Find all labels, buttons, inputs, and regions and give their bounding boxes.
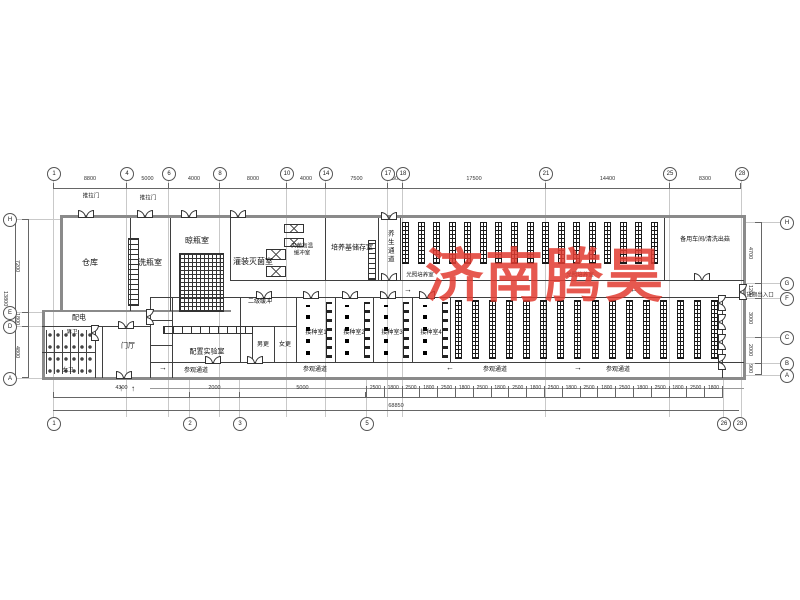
wall: [400, 218, 401, 281]
dim-value: 17500: [403, 176, 545, 182]
dimension-chain-left: 7200 1800 4800: [22, 219, 29, 378]
rack-strip: [677, 300, 684, 359]
lab-bench: [163, 326, 253, 334]
grid-bubble-top: 10: [280, 167, 294, 181]
grid-bubble-right: C: [780, 331, 794, 345]
dim-value: 900: [747, 364, 753, 374]
grid-bubble-top: 8: [213, 167, 227, 181]
dim-value: 1800: [491, 386, 509, 397]
door-symbol: [181, 210, 197, 218]
room-label-mens-toilet: 男卫: [66, 330, 77, 336]
grid-line: [126, 173, 127, 417]
grid-line: [723, 380, 724, 417]
door-symbol: [303, 291, 319, 299]
door-symbol: [694, 273, 710, 281]
wall: [373, 297, 374, 363]
grid-bubble-top: 18: [396, 167, 410, 181]
direction-arrow: →: [404, 286, 412, 294]
dim-value: 1800: [419, 386, 437, 397]
rack-strip: [694, 300, 701, 359]
dim-total-value: 13800: [2, 219, 8, 378]
grid-line: [669, 173, 670, 417]
dim-value: 2000: [190, 385, 239, 391]
door-symbol: [718, 295, 726, 311]
wall: [42, 311, 45, 380]
dimension-chain-bottom: 4300 2000 5000: [53, 392, 366, 398]
grid-bubble-bottom: 2: [183, 417, 197, 431]
door-symbol: [718, 314, 726, 330]
grid-bubble-right: H: [780, 216, 794, 230]
direction-arrow: →: [159, 364, 167, 372]
grid-bubble-top: 1: [47, 167, 61, 181]
dim-value: 8000: [220, 176, 286, 182]
grid-bubble-top: 4: [120, 167, 134, 181]
grid-bubble-left: H: [3, 213, 17, 227]
grid-bubble-top: 21: [539, 167, 553, 181]
door-symbol: [118, 321, 134, 329]
label-cargo-entrance: 货物出入口: [746, 293, 774, 299]
dim-value: 1800: [526, 386, 544, 397]
dim-value: 2500: [615, 386, 633, 397]
grid-bubble-bottom: 26: [717, 417, 731, 431]
room-label-warehouse: 仓库: [82, 259, 98, 267]
room-label-inoculation-2: 接种室2: [343, 330, 364, 336]
grid-bubble-right: A: [780, 369, 794, 383]
entrance-arrow: ↑: [131, 385, 135, 393]
door-symbol: [146, 309, 154, 325]
label-sliding-door: 推拉门: [140, 196, 157, 202]
dim-value: 2500: [437, 386, 455, 397]
door-symbol: [137, 210, 153, 218]
grid-bubble-top: 17: [381, 167, 395, 181]
dimension-chain-top: 8800 5000 4000 8000 4000 7500 1800 17500…: [53, 183, 741, 189]
watermark-text: 济南腾昊: [425, 248, 665, 306]
dim-value: 2500: [402, 386, 420, 397]
grid-bubble-top: 6: [162, 167, 176, 181]
grid-line: [15, 378, 42, 379]
room-label-sterilize-buffer-1: 灭菌高温: [291, 244, 313, 250]
floor-plan-canvas: 8800 5000 4000 8000 4000 7500 1800 17500…: [0, 0, 800, 600]
wall: [325, 218, 326, 281]
room-label-prep-lab: 配置实验室: [190, 349, 225, 356]
room-label-secondary-buffer: 二级缓冲: [248, 299, 272, 305]
room-label-womens-change: 女更: [279, 342, 291, 348]
room-label-medium-storage: 培养基储存室: [331, 245, 373, 252]
door-symbol: [247, 356, 263, 364]
clean-bench: [326, 302, 332, 358]
dim-value: 1800: [562, 386, 580, 397]
grid-bubble-bottom: 5: [360, 417, 374, 431]
label-visitor-corridor: 参观通道: [483, 367, 507, 373]
label-visitor-corridor: 参观通道: [303, 367, 327, 373]
grid-bubble-left: D: [3, 320, 17, 334]
wall: [378, 218, 379, 281]
wall: [150, 345, 172, 346]
door-symbol: [381, 273, 397, 281]
door-symbol: [91, 325, 99, 341]
wall: [42, 377, 746, 380]
room-label-bottle-wash: 洗瓶室: [138, 259, 162, 267]
autoclave: [284, 224, 304, 233]
grid-bubble-top: 14: [319, 167, 333, 181]
door-symbol: [718, 354, 726, 370]
room-label-womens-toilet: 女卫: [62, 368, 73, 374]
dim-value: 1800: [384, 386, 402, 397]
shelf-ladder: [128, 238, 139, 306]
door-symbol: [78, 210, 94, 218]
room-label-inoculation-3: 接种室3: [381, 330, 402, 336]
clean-bench: [403, 302, 409, 358]
room-label-sterilize-buffer-2: 缓冲室: [294, 251, 311, 257]
rack-strip: [418, 222, 425, 264]
rack-strip: [402, 222, 409, 264]
label-sliding-door: 推拉门: [83, 194, 100, 200]
wall: [172, 297, 173, 378]
grid-bubble-left: E: [3, 306, 17, 320]
rack-strip: [711, 300, 718, 359]
dimension-chain-small: 2500180025001800250018002500180025001800…: [366, 392, 723, 398]
dim-value: 8300: [670, 176, 740, 182]
grid-bubble-left: A: [3, 372, 17, 386]
room-label-power: 配电: [72, 315, 86, 322]
grid-line: [168, 173, 169, 417]
dim-value: 4700: [747, 223, 753, 283]
label-visitor-corridor: 参观通道: [184, 368, 208, 374]
dim-value: 1800: [669, 386, 687, 397]
wall: [60, 215, 63, 312]
room-label-lobby: 门厅: [121, 343, 135, 350]
label-visitor-corridor: 参观通道: [606, 367, 630, 373]
wall: [335, 297, 336, 363]
room-label-bottle-dry: 晾瓶室: [185, 237, 209, 245]
dim-value: 2500: [366, 386, 384, 397]
door-symbol: [380, 291, 396, 299]
grid-bubble-bottom: 3: [233, 417, 247, 431]
clean-bench: [364, 302, 370, 358]
door-symbol: [205, 356, 221, 364]
dimension-total-left: 13800: [10, 219, 16, 378]
wall: [230, 218, 231, 281]
room-label-inoculation-1: 接种室1: [305, 330, 326, 336]
grid-line: [286, 173, 287, 417]
dimension-total-bottom: 68850: [53, 410, 739, 411]
dim-value: 1800: [633, 386, 651, 397]
grid-bubble-bottom: 1: [47, 417, 61, 431]
dim-value: 2500: [651, 386, 669, 397]
dim-value: 3000: [747, 299, 753, 337]
dim-value: 2500: [508, 386, 526, 397]
wall: [274, 326, 275, 363]
dim-value: 1800: [455, 386, 473, 397]
autoclave: [266, 266, 286, 277]
grid-line: [325, 173, 326, 417]
grid-line: [53, 173, 54, 417]
grid-bubble-top: 28: [735, 167, 749, 181]
wall: [412, 297, 413, 363]
clean-bench: [442, 302, 448, 358]
dim-total-value: 68850: [53, 403, 739, 409]
drying-area-hatch: [179, 253, 224, 312]
dim-value: 5000: [240, 385, 365, 391]
grid-bubble-right: G: [780, 277, 794, 291]
direction-arrow: →: [574, 364, 582, 372]
door-symbol: [342, 291, 358, 299]
dim-value: 7500: [326, 176, 387, 182]
entrance-arrow: ↑: [119, 385, 123, 393]
dim-value: 2500: [473, 386, 491, 397]
wall: [60, 215, 746, 218]
entrance-door-symbol: [116, 371, 132, 379]
door-symbol: [381, 212, 397, 220]
room-label-mens-change: 男更: [257, 342, 269, 348]
door-symbol: [718, 334, 726, 350]
grid-bubble-right: F: [780, 292, 794, 306]
direction-arrow: ←: [446, 364, 454, 372]
grid-bubble-top: 25: [663, 167, 677, 181]
dim-value: 2500: [544, 386, 562, 397]
room-label-grow-corridor: 养生通道: [386, 230, 393, 264]
dim-value: 1800: [597, 386, 615, 397]
room-label-spare-workshop: 备用车间/清洗出菇: [680, 237, 730, 243]
dim-value: 2500: [686, 386, 704, 397]
dim-value: 2000: [747, 338, 753, 363]
room-label-inoculation-4: 接种室4: [420, 330, 441, 336]
grid-bubble-bottom: 28: [733, 417, 747, 431]
grid-line: [746, 375, 780, 376]
dim-value: 4000: [169, 176, 219, 182]
door-symbol: [256, 291, 272, 299]
wall: [296, 297, 297, 363]
wall: [102, 326, 103, 378]
room-label-filling-sterilize: 灌装灭菌室: [233, 258, 273, 266]
dim-value: 14400: [546, 176, 669, 182]
dim-value: 8800: [54, 176, 126, 182]
dim-value: 2500: [580, 386, 598, 397]
dim-value: 1800: [704, 386, 723, 397]
door-symbol: [230, 210, 246, 218]
grid-line: [402, 173, 403, 417]
